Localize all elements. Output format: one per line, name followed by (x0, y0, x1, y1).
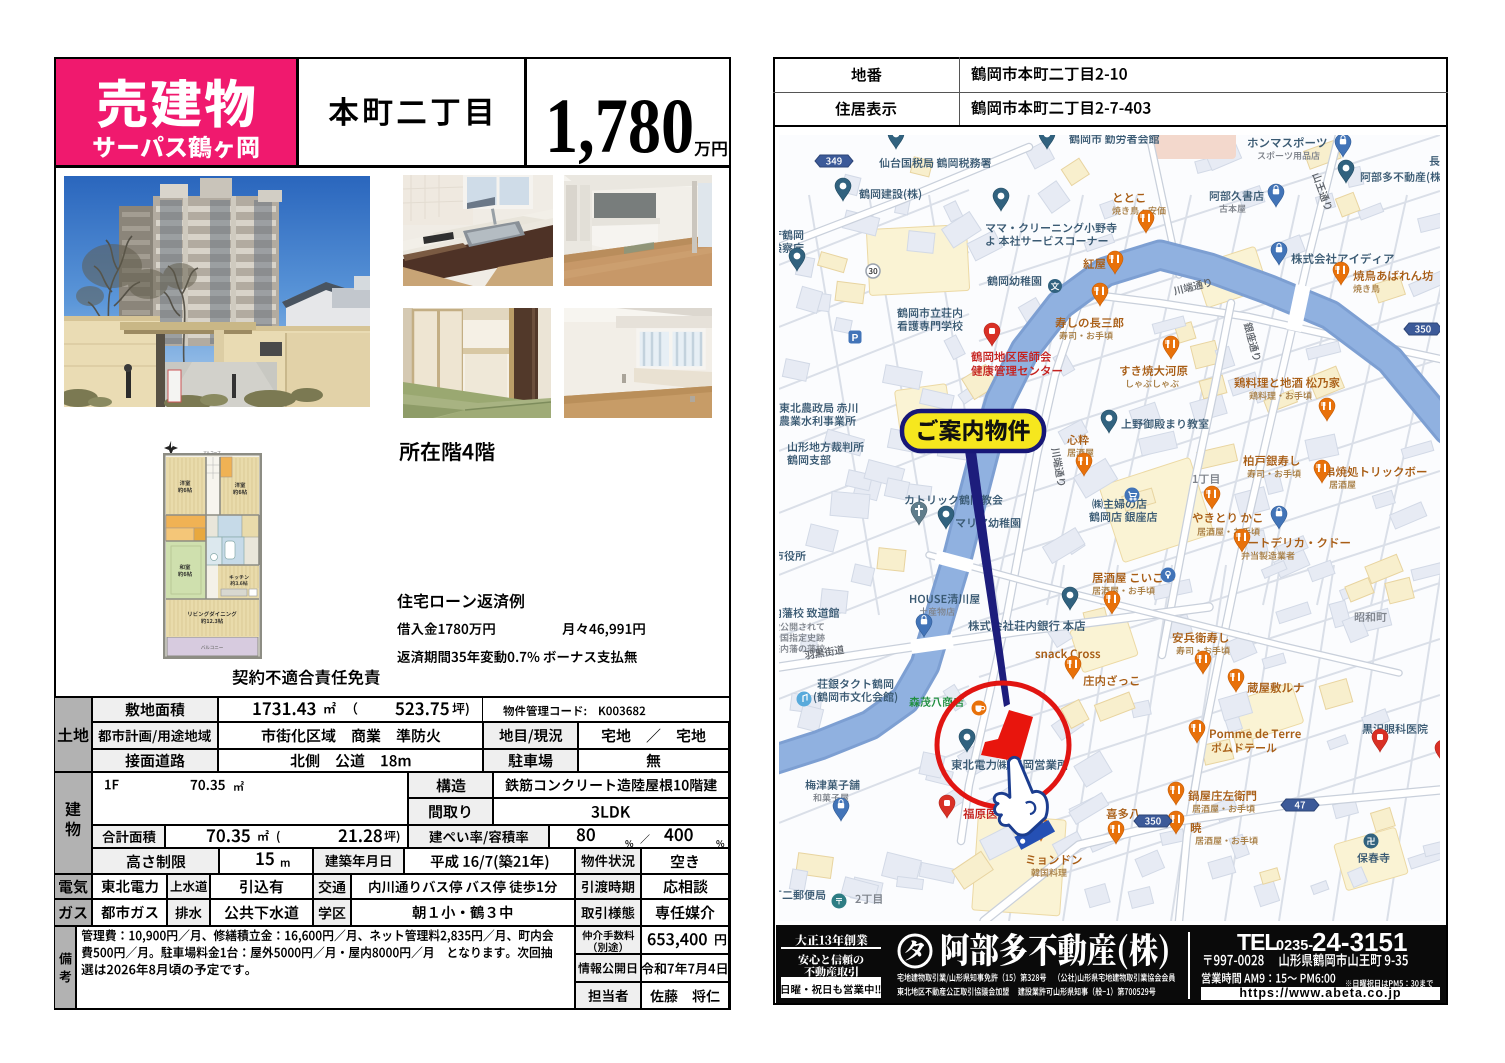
svg-text:P: P (852, 333, 859, 344)
